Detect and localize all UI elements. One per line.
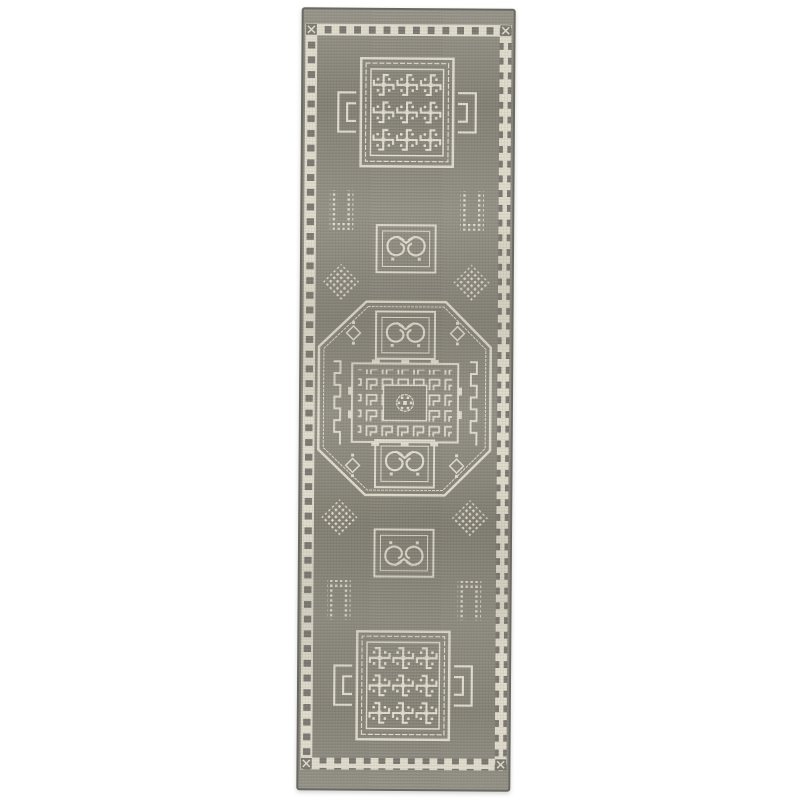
- runner-rug-photo: [296, 7, 515, 791]
- lower-scroll-medallion: [374, 529, 433, 577]
- product-photo-canvas: [0, 0, 800, 800]
- upper-right-tower: [460, 191, 484, 230]
- rug-ornament-layer: [298, 9, 513, 789]
- upper-left-tower: [330, 190, 354, 229]
- center-octagon-medallion: [318, 301, 491, 496]
- top-star-medallion: [338, 58, 476, 167]
- lower-right-tower: [457, 581, 481, 620]
- upper-scroll-medallion: [376, 225, 435, 273]
- upper-left-cluster: [323, 264, 359, 300]
- bottom-star-medallion: [334, 631, 472, 740]
- lower-left-tower: [327, 580, 351, 619]
- lower-right-cluster: [452, 500, 488, 536]
- lower-left-cluster: [321, 499, 357, 535]
- greek-key-square: [348, 359, 462, 446]
- upper-right-cluster: [453, 265, 489, 301]
